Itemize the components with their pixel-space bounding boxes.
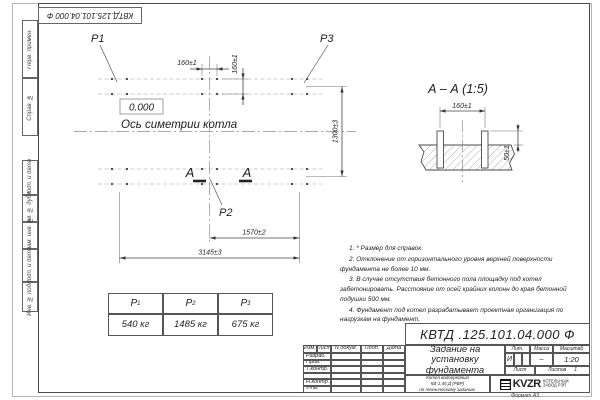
- margin-label: Инв. № подл.: [27, 279, 33, 316]
- margin-box-podp-data-2: Подп. и дата: [22, 249, 38, 282]
- notes-block: 1. * Размер для справок. 2. Отклонение о…: [340, 244, 588, 326]
- company-name-line2: ЗАВОД РЭП: [543, 384, 569, 388]
- tb-col-ndokum: N докум.: [331, 345, 361, 353]
- dimension-arrows: [120, 67, 344, 259]
- tb-row-utv: Утв.: [303, 386, 331, 393]
- tb-col-data: Дата: [383, 345, 405, 353]
- tb-sheets-cell: Листов 1: [535, 366, 590, 375]
- boiler-subtitle: Котел водогрейный КВ-1,45 Д (РВР) по тех…: [405, 375, 490, 393]
- plan-view: P1 P3 P2 0.000 Ось симетрии котла А А 16…: [40, 20, 370, 280]
- section-dimension-arrows: [440, 109, 520, 150]
- kvzr-logo-text: KVZR: [513, 379, 541, 390]
- load-table-header-p2: P2: [163, 293, 218, 314]
- margin-box-sprav-n: Справ. №: [22, 78, 38, 136]
- load-table-header-p1: P1: [108, 293, 163, 314]
- note-2: 2. Отклонение от горизонтального уровня …: [340, 255, 588, 275]
- margin-box-perv-primen: Перв. примен.: [22, 20, 38, 78]
- dim-bolt-vertical: 160±1: [232, 54, 239, 74]
- tb-lit-cell3: [522, 353, 530, 366]
- note-3: 3. В случае отсутствия бетонного пола пл…: [340, 275, 588, 304]
- drawing-title-line1: Задание на: [430, 345, 481, 354]
- dimension-lines: [120, 68, 343, 258]
- p3-symbol: P: [240, 299, 247, 309]
- tb-mass-label: Масса: [530, 345, 553, 353]
- tb-sheets-value: 1: [574, 368, 577, 373]
- tb-col-list: Лист: [317, 345, 331, 353]
- margin-box-inv-podl: Инв. № подл.: [22, 282, 38, 312]
- note-1: 1. * Размер для справок.: [340, 244, 588, 254]
- tb-sheets-label: Листов: [548, 368, 566, 373]
- tb-scale-label: Масштаб: [553, 345, 590, 353]
- dim-overall: 3145±3: [198, 250, 221, 257]
- load-label-p1: P1: [91, 33, 104, 45]
- tb-col-podp: Подп.: [361, 345, 383, 353]
- axis-centerlines: [74, 56, 356, 243]
- margin-label: Справ. №: [27, 94, 33, 121]
- tb-cell: [383, 386, 405, 393]
- company-cell: KVZR КОТЕЛЬНЫЙ ЗАВОД РЭП: [490, 375, 590, 393]
- company-name: КОТЕЛЬНЫЙ ЗАВОД РЭП: [543, 380, 569, 388]
- section-letter-left: А: [185, 165, 195, 180]
- tb-cell: [331, 386, 361, 393]
- load-table-header-p3: P3: [218, 293, 273, 314]
- level-mark-value: 0.000: [129, 103, 154, 114]
- boiler-axis-label: Ось симетрии котла: [121, 119, 237, 131]
- drawing-title: Задание на установку фундамента: [405, 345, 505, 375]
- load-value-p3: 675 кг: [218, 314, 273, 336]
- p1-symbol: P: [130, 299, 137, 309]
- section-title: А – А (1:5): [427, 82, 488, 96]
- tb-sheet-label: Лист: [505, 366, 535, 375]
- subtitle-line1: Котел водогрейный: [426, 376, 469, 381]
- margin-label: Перв. примен.: [27, 29, 33, 69]
- section-view: А – А (1:5) 160±1 50±1: [385, 78, 560, 190]
- p1-subscript: 1: [137, 301, 140, 307]
- tb-scale-value: 1:20: [553, 353, 590, 366]
- section-dim-spacing: 160±1: [452, 103, 472, 110]
- subtitle-line2: КВ-1,45 Д (РВР): [431, 382, 465, 387]
- format-label: Формат А3: [487, 393, 564, 398]
- drawing-sheet: Перв. примен. Справ. № Подп. и дата Инв.…: [0, 0, 600, 400]
- load-label-p3: P3: [320, 33, 334, 45]
- load-value-p1: 540 кг: [108, 314, 163, 336]
- dim-bolt-horizontal: 160±1: [177, 60, 197, 67]
- load-value-p2: 1485 кг: [163, 314, 218, 336]
- tb-lit-value: И: [505, 353, 514, 366]
- tb-lit-cell2: [514, 353, 522, 366]
- margin-box-vzam-inv: Взам. инв. №: [22, 222, 38, 249]
- p3-subscript: 3: [247, 301, 250, 307]
- kvzr-coil-icon: [500, 379, 511, 390]
- doc-number-stamp-text: КВТД.125.101.04.000 Ф: [47, 11, 133, 20]
- tb-lit-label: Лит.: [505, 345, 530, 353]
- dim-row-span: 1300±3: [333, 120, 340, 143]
- tb-col-izm: Изм.: [303, 345, 317, 353]
- subtitle-line3: по техническому заданию: [420, 388, 476, 393]
- drawing-title-line2: установку: [431, 355, 478, 365]
- section-letter-right: А: [242, 165, 252, 180]
- drawing-title-line3: фундамента: [426, 366, 484, 375]
- tb-cell: [361, 386, 383, 393]
- tb-mass-value: –: [530, 353, 553, 366]
- section-dim-height: 50±1: [504, 145, 511, 161]
- title-block-doc-number: КВТД .125.101.04.000 Ф: [405, 323, 590, 345]
- concrete-pad: [419, 145, 515, 170]
- load-label-p2: P2: [219, 207, 232, 219]
- dim-mid-right: 1570±2: [242, 230, 265, 237]
- p2-subscript: 2: [192, 301, 195, 307]
